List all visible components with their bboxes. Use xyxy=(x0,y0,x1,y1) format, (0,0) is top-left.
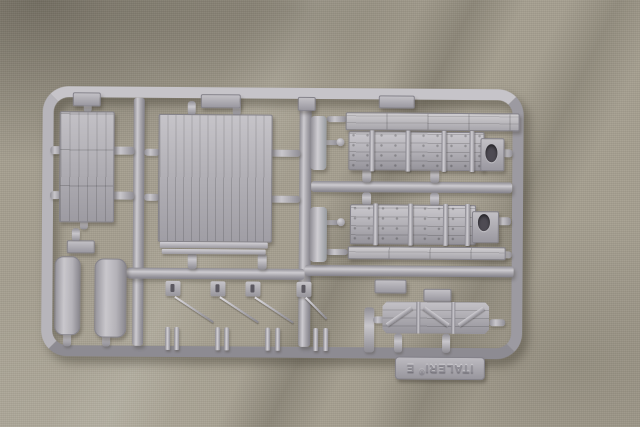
handrail-post xyxy=(275,328,280,351)
handrail-post xyxy=(313,328,318,351)
end-divider xyxy=(451,301,455,335)
brake-clip xyxy=(296,282,311,297)
diagonal-brace xyxy=(386,306,413,326)
stanchion xyxy=(443,204,448,246)
part-wagon-side-upper-end xyxy=(480,138,504,171)
sprue-gate xyxy=(111,147,134,155)
sprue-gate xyxy=(497,217,511,225)
part-plank-strip-long xyxy=(348,246,506,260)
brand-text: ITALERI® E xyxy=(406,362,474,375)
coupling-knob xyxy=(337,218,345,226)
sprue-gate xyxy=(430,169,439,183)
stanchion xyxy=(408,204,413,246)
sprue-gate xyxy=(269,150,300,157)
handrail-post xyxy=(165,327,170,350)
sprue-gate xyxy=(269,196,300,203)
part-small-tab-top-center xyxy=(201,94,241,108)
handrail-post xyxy=(174,327,179,350)
registered-mark-icon: ® xyxy=(419,368,425,375)
part-plank-strip-1 xyxy=(160,242,268,249)
part-wagon-side-lower-end xyxy=(472,211,499,243)
diagonal-brace xyxy=(458,307,485,327)
stanchion xyxy=(405,131,410,172)
end-divider xyxy=(416,301,420,335)
diagonal-brace xyxy=(423,306,450,327)
part-wagon-side-thin xyxy=(346,112,520,131)
sprue-gate xyxy=(111,192,134,200)
part-small-tab-a xyxy=(374,279,406,293)
handhold-hole xyxy=(485,144,497,162)
sprue-gate xyxy=(188,253,197,269)
brake-clip xyxy=(165,281,180,296)
part-buffer-beam-upper xyxy=(310,116,326,170)
part-small-tab-top-left xyxy=(73,92,101,106)
handhold-hole xyxy=(478,214,490,231)
part-wagon-side-upper xyxy=(348,131,484,171)
handrail-post xyxy=(323,328,328,351)
part-small-tab-top-right xyxy=(379,95,415,108)
sprue-gate xyxy=(394,334,402,353)
part-wagon-end-braced xyxy=(382,301,489,334)
sprue-gate xyxy=(144,149,159,156)
sprue-gate xyxy=(188,101,196,115)
brake-clip xyxy=(210,281,225,296)
part-small-tab-b xyxy=(423,289,451,302)
part-small-tab-runner xyxy=(298,97,316,111)
sprue-gate xyxy=(258,254,267,270)
runner-vertical-left xyxy=(132,98,145,346)
sprue-gate xyxy=(489,319,505,326)
sprue-gate xyxy=(326,249,348,255)
runner-horizontal-upper-right xyxy=(311,181,512,193)
stanchion xyxy=(441,131,446,172)
sprue-gate xyxy=(327,116,347,122)
photo-model-kit-sprue: ITALERI® E xyxy=(0,0,640,427)
part-buffer-beam-lower xyxy=(310,207,327,262)
part-planked-deck xyxy=(59,111,115,222)
sprue-gate xyxy=(442,334,450,353)
runner-horizontal-lower-right xyxy=(305,265,514,277)
sprue-gate xyxy=(364,307,374,352)
stanchion xyxy=(373,203,378,245)
coupling-knob xyxy=(336,138,344,146)
handrail-post xyxy=(215,327,220,350)
sprue-gate xyxy=(144,194,159,201)
part-large-planked-panel xyxy=(158,114,273,243)
part-wagon-side-lower xyxy=(350,204,476,245)
runner-horizontal-lower-left xyxy=(127,268,305,280)
stanchion xyxy=(465,204,470,246)
brake-clip xyxy=(245,281,260,296)
part-small-bar-left xyxy=(67,240,95,253)
stanchion xyxy=(369,130,374,171)
part-plank-strip-2 xyxy=(162,249,266,255)
handrail-post xyxy=(224,327,229,350)
part-tarpaulin-2 xyxy=(94,258,127,337)
brand-tab: ITALERI® E xyxy=(395,357,485,381)
sprue: ITALERI® E xyxy=(0,0,640,427)
handrail-post xyxy=(265,328,270,351)
part-tarpaulin-1 xyxy=(54,256,81,335)
stanchion xyxy=(469,131,474,172)
